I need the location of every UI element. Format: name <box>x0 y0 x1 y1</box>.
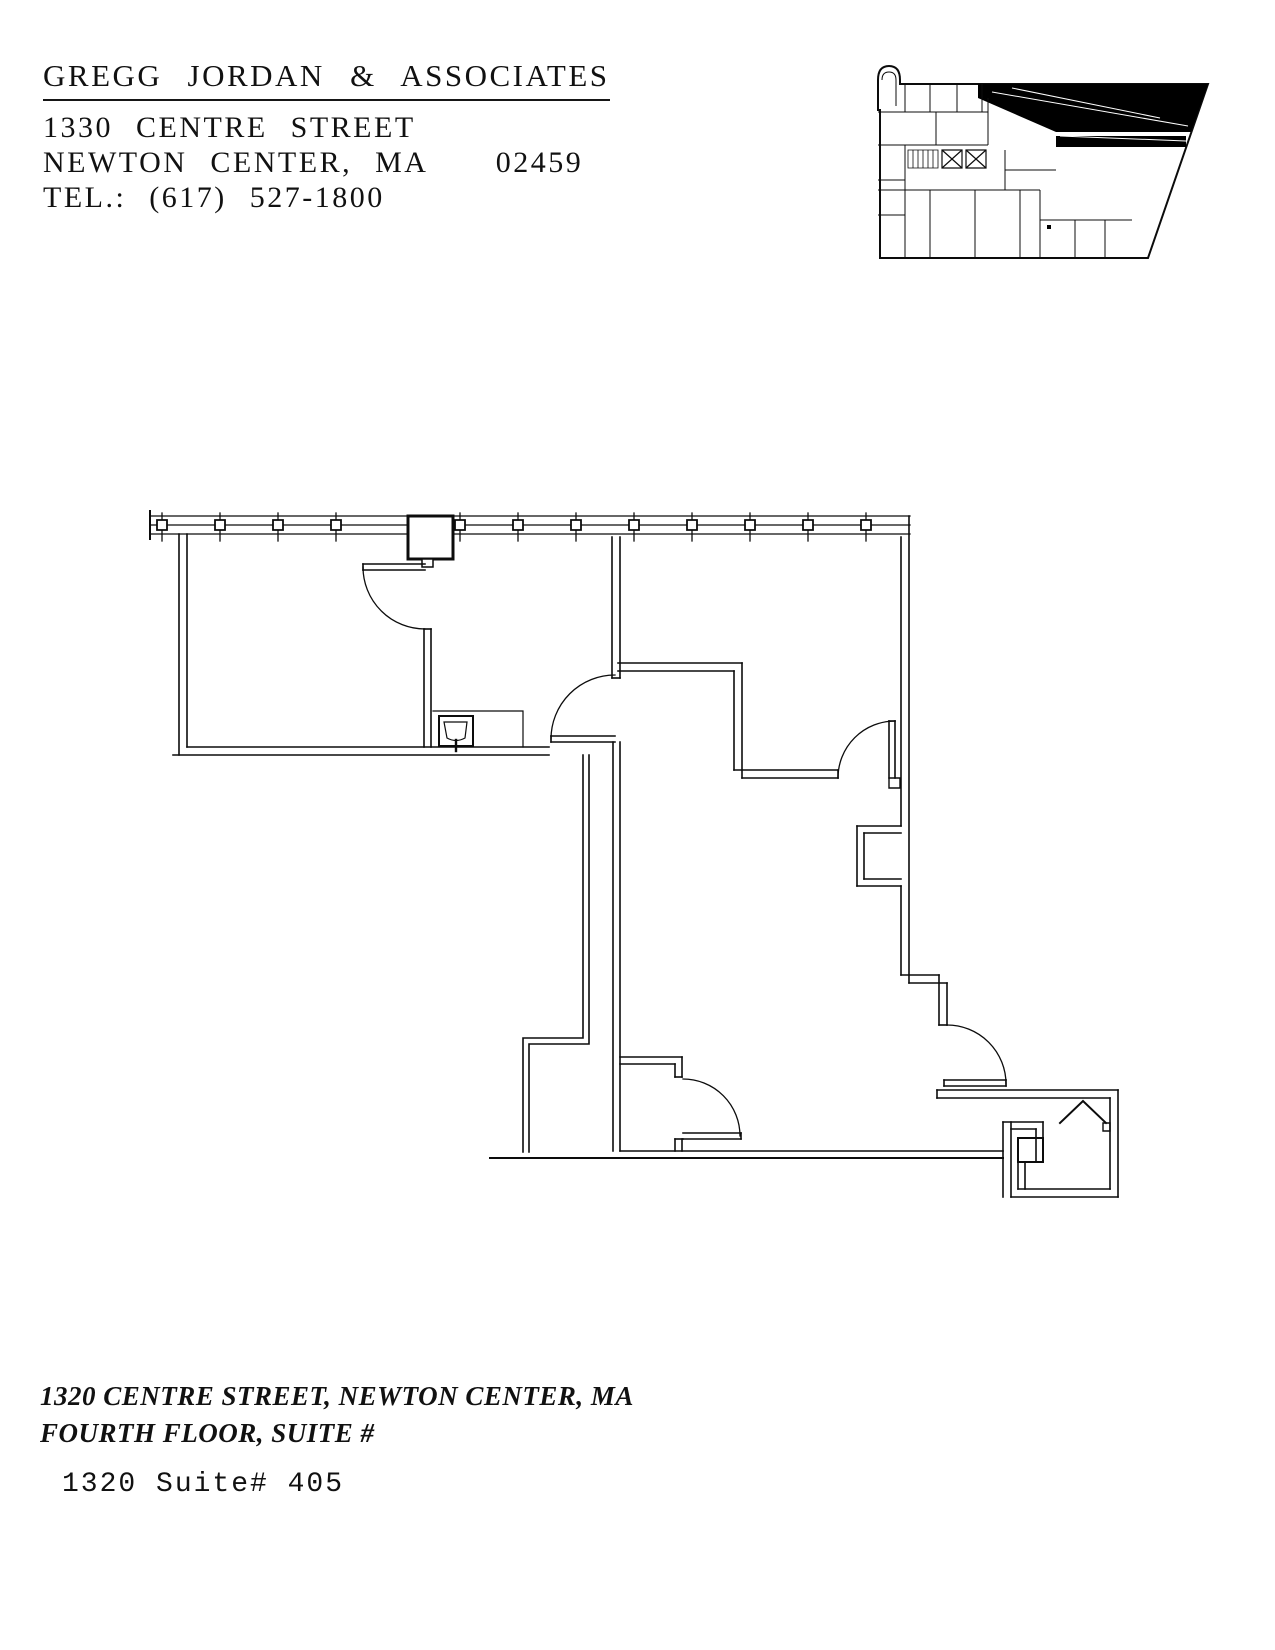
wall-jog <box>901 975 947 1025</box>
location-line-2: FOURTH FLOOR, SUITE # <box>40 1415 634 1452</box>
key-plan-suite-highlight <box>978 84 1208 229</box>
letterhead: GREGG JORDAN & ASSOCIATES 1330 CENTRE ST… <box>43 58 610 215</box>
open-area-door <box>944 1025 1006 1086</box>
door-swing-arc <box>838 721 895 778</box>
closet-room <box>1003 1090 1118 1197</box>
left-office-door <box>363 564 431 747</box>
door-swing-arc <box>551 675 615 739</box>
key-plan-elevator-core <box>942 150 986 168</box>
key-plan-stair-hatch <box>908 150 938 168</box>
bifold-door-marker <box>1060 1101 1110 1131</box>
location-line-1: 1320 CENTRE STREET, NEWTON CENTER, MA <box>40 1378 634 1415</box>
door-swing-arc <box>363 567 425 629</box>
wall-recess <box>857 826 901 886</box>
suite-plan-drawing <box>130 450 1150 1230</box>
right-office-door <box>838 721 900 788</box>
bottom-walls <box>490 1090 1118 1158</box>
bottom-office-walls <box>620 1057 682 1077</box>
closet-fixture <box>1018 1138 1043 1162</box>
structural-column <box>408 516 453 567</box>
window-wall <box>150 511 910 567</box>
key-plan-drawing <box>872 56 1218 264</box>
door-swing-arc <box>683 1079 740 1136</box>
phone-line: TEL.: (617) 527-1800 <box>43 180 610 215</box>
suite-number: 1320 Suite# 405 <box>62 1469 634 1500</box>
left-office-walls <box>173 534 549 755</box>
title-block: 1320 CENTRE STREET, NEWTON CENTER, MA FO… <box>40 1378 634 1500</box>
middle-room-door <box>551 675 615 742</box>
company-name: GREGG JORDAN & ASSOCIATES <box>43 58 610 101</box>
kitchenette-sink <box>433 711 523 751</box>
corridor-walls <box>523 742 620 1152</box>
right-exterior-wall <box>857 516 947 1025</box>
right-office-walls <box>618 663 838 778</box>
center-partition-wall <box>612 537 620 678</box>
bottom-office-door <box>675 1079 741 1151</box>
floor-plan-sheet: GREGG JORDAN & ASSOCIATES 1330 CENTRE ST… <box>0 0 1275 1650</box>
door-swing-arc <box>947 1025 1006 1084</box>
address-line-2: NEWTON CENTER, MA 02459 <box>43 145 610 180</box>
window-mullions <box>157 513 871 541</box>
address-line-1: 1330 CENTRE STREET <box>43 110 610 145</box>
